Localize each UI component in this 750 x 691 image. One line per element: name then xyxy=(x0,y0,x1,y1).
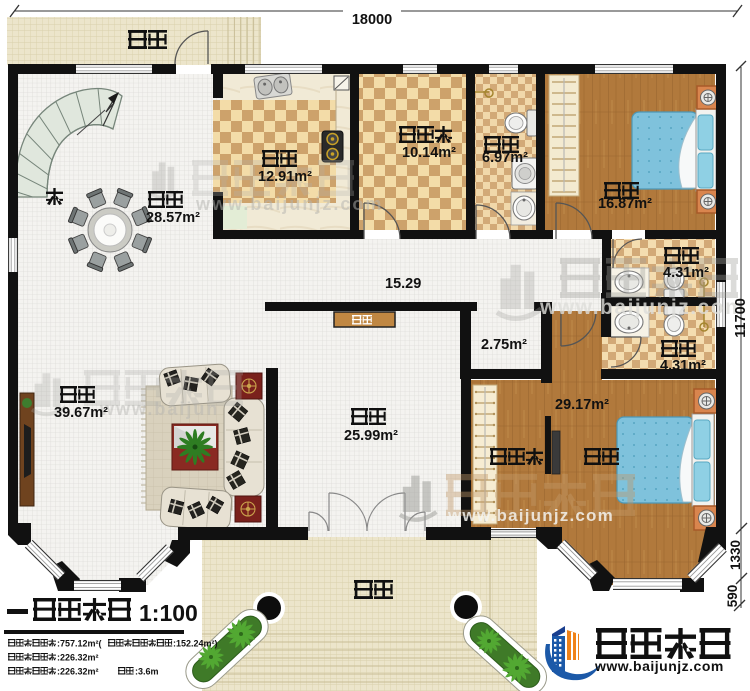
svg-text:39.67m²: 39.67m² xyxy=(54,405,108,421)
svg-text:1330: 1330 xyxy=(728,540,743,570)
svg-text:www.baijunjz.com: www.baijunjz.com xyxy=(447,506,614,525)
svg-text::3.6m: :3.6m xyxy=(135,667,159,677)
svg-text:6.97m²: 6.97m² xyxy=(482,150,528,166)
svg-text::226.32m²: :226.32m² xyxy=(57,653,99,663)
svg-text:www.baijunjz.com: www.baijunjz.com xyxy=(195,194,383,214)
svg-text:4.31m²: 4.31m² xyxy=(663,265,709,281)
svg-text:25.99m²: 25.99m² xyxy=(344,428,398,444)
svg-text:4.31m²: 4.31m² xyxy=(660,358,706,374)
svg-text:www.baijunjz.com: www.baijunjz.com xyxy=(594,658,724,674)
svg-text:10.14m²: 10.14m² xyxy=(402,145,456,161)
svg-text:2.75m²: 2.75m² xyxy=(481,337,527,353)
svg-text:11700: 11700 xyxy=(733,298,749,338)
svg-text::152.24m²): :152.24m²) xyxy=(173,639,218,649)
svg-text:29.17m²: 29.17m² xyxy=(555,397,609,413)
svg-text::226.32m²: :226.32m² xyxy=(57,667,99,677)
svg-text:1:100: 1:100 xyxy=(139,600,198,626)
svg-text:www.baijun: www.baijun xyxy=(99,399,219,419)
svg-text:www.baijunjz.com: www.baijunjz.com xyxy=(539,296,745,319)
svg-text:15.29: 15.29 xyxy=(385,276,421,292)
svg-text:12.91m²: 12.91m² xyxy=(258,169,312,185)
svg-text:16.87m²: 16.87m² xyxy=(598,196,652,212)
svg-text::757.12m²(: :757.12m²( xyxy=(57,639,102,649)
svg-text:28.57m²: 28.57m² xyxy=(146,210,200,226)
svg-text:590: 590 xyxy=(725,585,740,608)
svg-text:18000: 18000 xyxy=(352,12,392,28)
